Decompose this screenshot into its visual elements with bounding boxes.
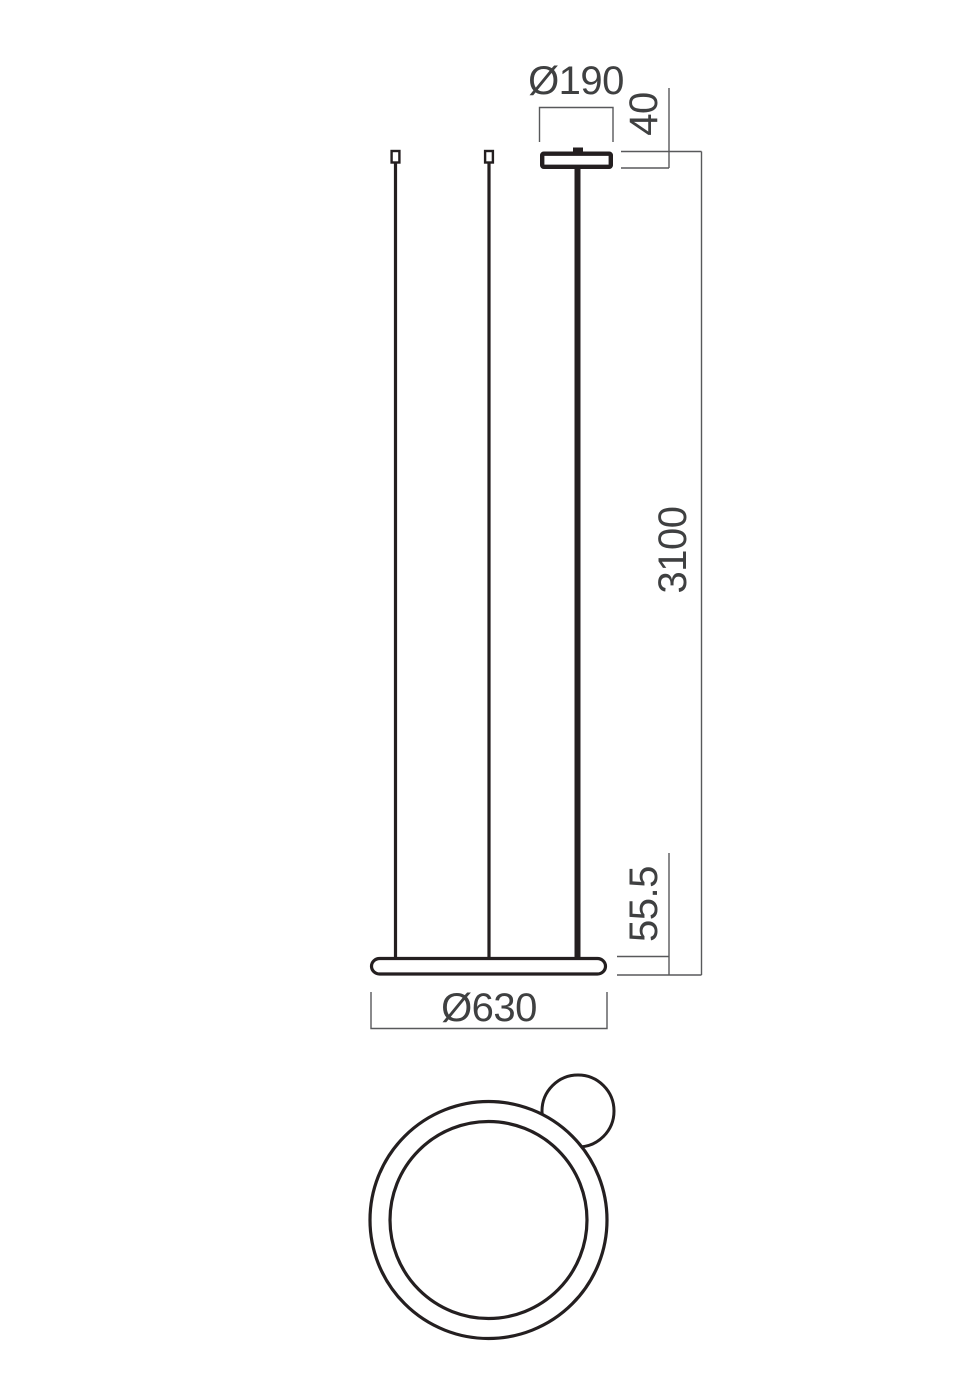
cable-middle-tip (485, 151, 493, 163)
dim-label-canopy-height: 40 (622, 92, 666, 136)
ring-profile (372, 959, 606, 975)
dim-label-ring-profile-height: 55.5 (622, 866, 666, 942)
top-view (370, 1075, 614, 1339)
dim-label-ring-diameter: Ø630 (441, 986, 537, 1030)
canopy (542, 148, 611, 958)
dimension-drawing-canvas: Ø190 40 3100 55.5 Ø630 (0, 0, 980, 1400)
dim-label-canopy-diameter: Ø190 (528, 59, 624, 103)
dim-label-suspension-length: 3100 (651, 507, 695, 594)
pendant-light-drawing: Ø190 40 3100 55.5 Ø630 (0, 0, 980, 1400)
cable-left (392, 151, 400, 957)
canopy-body (542, 154, 611, 167)
dim-bracket-canopy-diameter (540, 108, 614, 143)
cable-left-tip (392, 151, 400, 163)
dimension-annotations: Ø190 40 3100 55.5 Ø630 (371, 59, 702, 1030)
cable-middle (485, 151, 493, 957)
front-view (372, 148, 611, 975)
